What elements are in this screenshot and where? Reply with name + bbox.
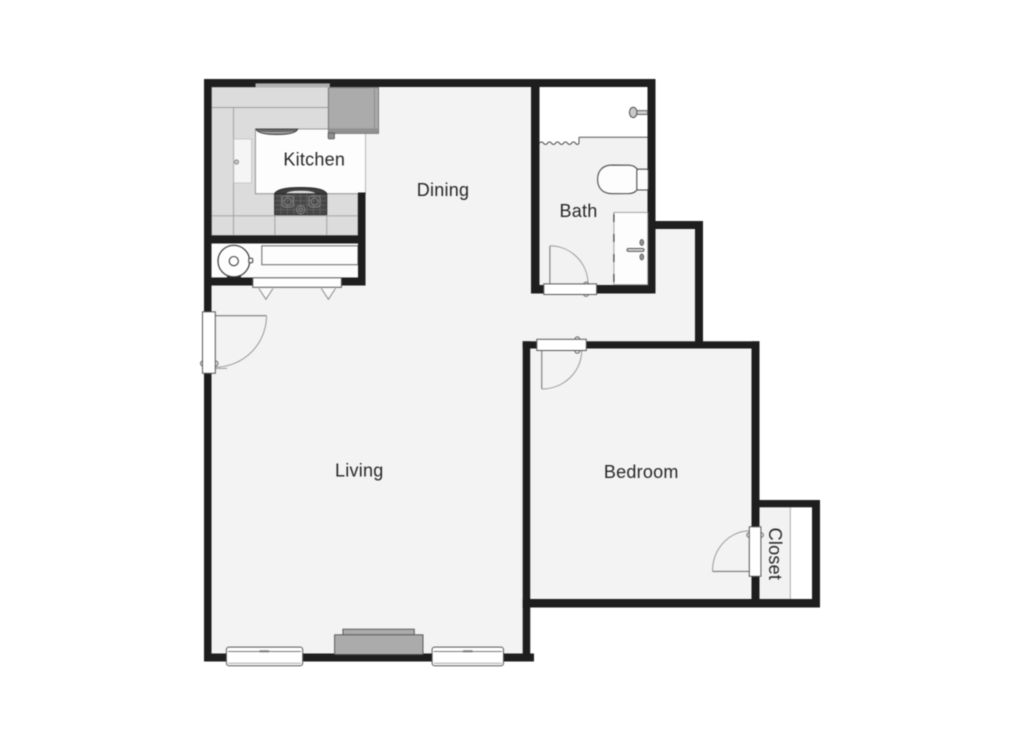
svg-text:Bath: Bath	[559, 201, 597, 221]
svg-text:Dining: Dining	[417, 180, 470, 200]
svg-text:Closet: Closet	[765, 528, 785, 581]
svg-text:Kitchen: Kitchen	[283, 150, 345, 170]
svg-text:Bedroom: Bedroom	[604, 462, 679, 482]
svg-text:Living: Living	[335, 461, 384, 481]
